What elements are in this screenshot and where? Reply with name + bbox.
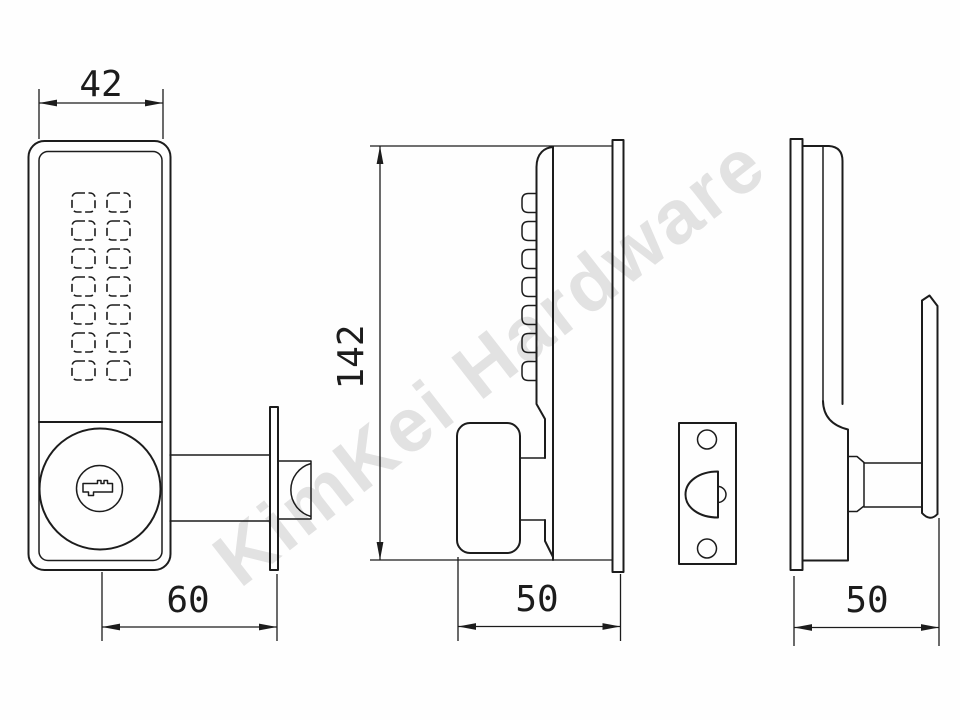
door-plate-edge-interior <box>791 139 803 570</box>
keypad-button <box>72 361 95 380</box>
keypad-button <box>107 361 130 380</box>
dimension-60: 60 <box>102 572 277 641</box>
interior-side-view <box>791 139 938 570</box>
keypad-button <box>72 277 95 296</box>
latch-deadlock-pin <box>718 487 726 503</box>
handle-boss <box>848 457 864 512</box>
latch-faceplate-outline <box>679 423 736 564</box>
knob-neck <box>520 458 545 520</box>
technical-drawing: 42 142 60 50 50 <box>0 0 960 720</box>
drawing-canvas: KimKei Hardware <box>0 0 960 720</box>
spindle-shaft <box>170 455 270 521</box>
knob-side-profile <box>457 423 520 553</box>
latch-bolt <box>278 461 311 519</box>
keypad-button <box>107 277 130 296</box>
screw-hole-bottom <box>698 539 717 558</box>
keypad-button <box>107 305 130 324</box>
keypad-button-side <box>522 334 537 353</box>
keypad-button <box>72 333 95 352</box>
latch-plate-view <box>679 423 736 564</box>
screw-hole-top <box>698 430 717 449</box>
keypad-buttons <box>72 193 130 380</box>
keypad-button-side <box>522 362 537 381</box>
dimension-label-50-exterior: 50 <box>515 579 558 620</box>
body-lower-profile <box>803 401 849 561</box>
dimension-142: 142 <box>331 146 612 560</box>
door-plate-edge <box>613 140 624 572</box>
keypad-button-side <box>522 278 537 297</box>
dimension-42: 42 <box>39 64 163 139</box>
exterior-side-view <box>457 140 624 572</box>
keypad-button <box>107 249 130 268</box>
keypad-button <box>72 305 95 324</box>
dimension-50-exterior: 50 <box>458 557 621 641</box>
dimension-label-60: 60 <box>166 580 209 621</box>
dimension-label-42: 42 <box>79 64 122 105</box>
latch-bolt-face <box>686 472 719 518</box>
lock-body-outline <box>29 141 171 570</box>
keypad-buttons-side <box>522 194 537 381</box>
extension-lines-142 <box>370 146 612 560</box>
keypad-button <box>72 221 95 240</box>
handle-neck <box>864 463 922 507</box>
dimension-label-142: 142 <box>331 324 372 389</box>
keypad-cover-profile-lower <box>545 520 553 557</box>
knob-circle <box>40 429 161 550</box>
keypad-button <box>72 193 95 212</box>
keypad-button <box>107 333 130 352</box>
lever-handle <box>922 296 938 518</box>
dimension-50-interior: 50 <box>794 518 939 646</box>
mounting-plate-edge <box>270 407 278 570</box>
dimension-label-50-interior: 50 <box>845 580 888 621</box>
front-view <box>29 141 312 570</box>
keypad-button-side <box>522 222 537 241</box>
keypad-cover-profile-upper <box>537 147 554 458</box>
lock-faceplate-outline <box>39 152 162 561</box>
keypad-button-side <box>522 194 537 213</box>
keypad-button <box>107 221 130 240</box>
keypad-button <box>107 193 130 212</box>
keypad-button-side <box>522 306 537 325</box>
keypad-button-side <box>522 250 537 269</box>
keyhole-icon <box>83 481 113 496</box>
keypad-button <box>72 249 95 268</box>
